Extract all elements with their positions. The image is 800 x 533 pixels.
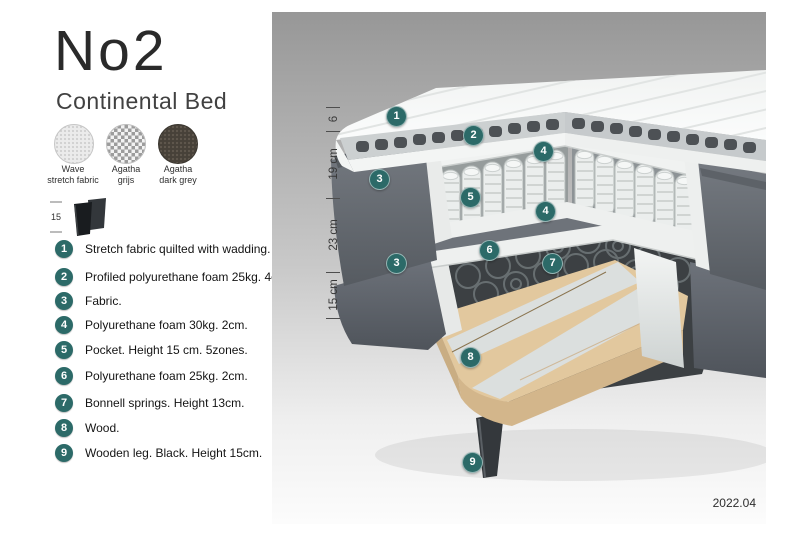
callout-7-bonnell: 7 [542,253,563,274]
callout-3-fabric-upper: 3 [369,169,390,190]
product-sheet: No2 Continental Bed Wave stretch fabric … [0,0,800,533]
dimension-label-box: 23 cm [325,205,343,265]
ruler-tick [326,198,340,199]
callout-8-wood: 8 [460,347,481,368]
callout-1-stretch-fabric: 1 [386,106,407,127]
floor-shadow [375,429,775,481]
callout-6-foam-box: 6 [479,240,500,261]
callout-4-foam-top: 4 [533,141,554,162]
callout-4-foam-bottom: 4 [535,201,556,222]
callout-3-fabric-lower: 3 [386,253,407,274]
dimension-label-pocket: 19 cm [325,134,343,194]
callout-5-pocket: 5 [460,187,481,208]
version-stamp: 2022.04 [713,496,756,510]
dimension-ruler: 6 19 cm 23 cm 15 cm [316,100,352,326]
callout-9-leg: 9 [462,452,483,473]
callout-2-profiled-foam: 2 [463,125,484,146]
dimension-label-leg: 15 cm [325,265,343,325]
